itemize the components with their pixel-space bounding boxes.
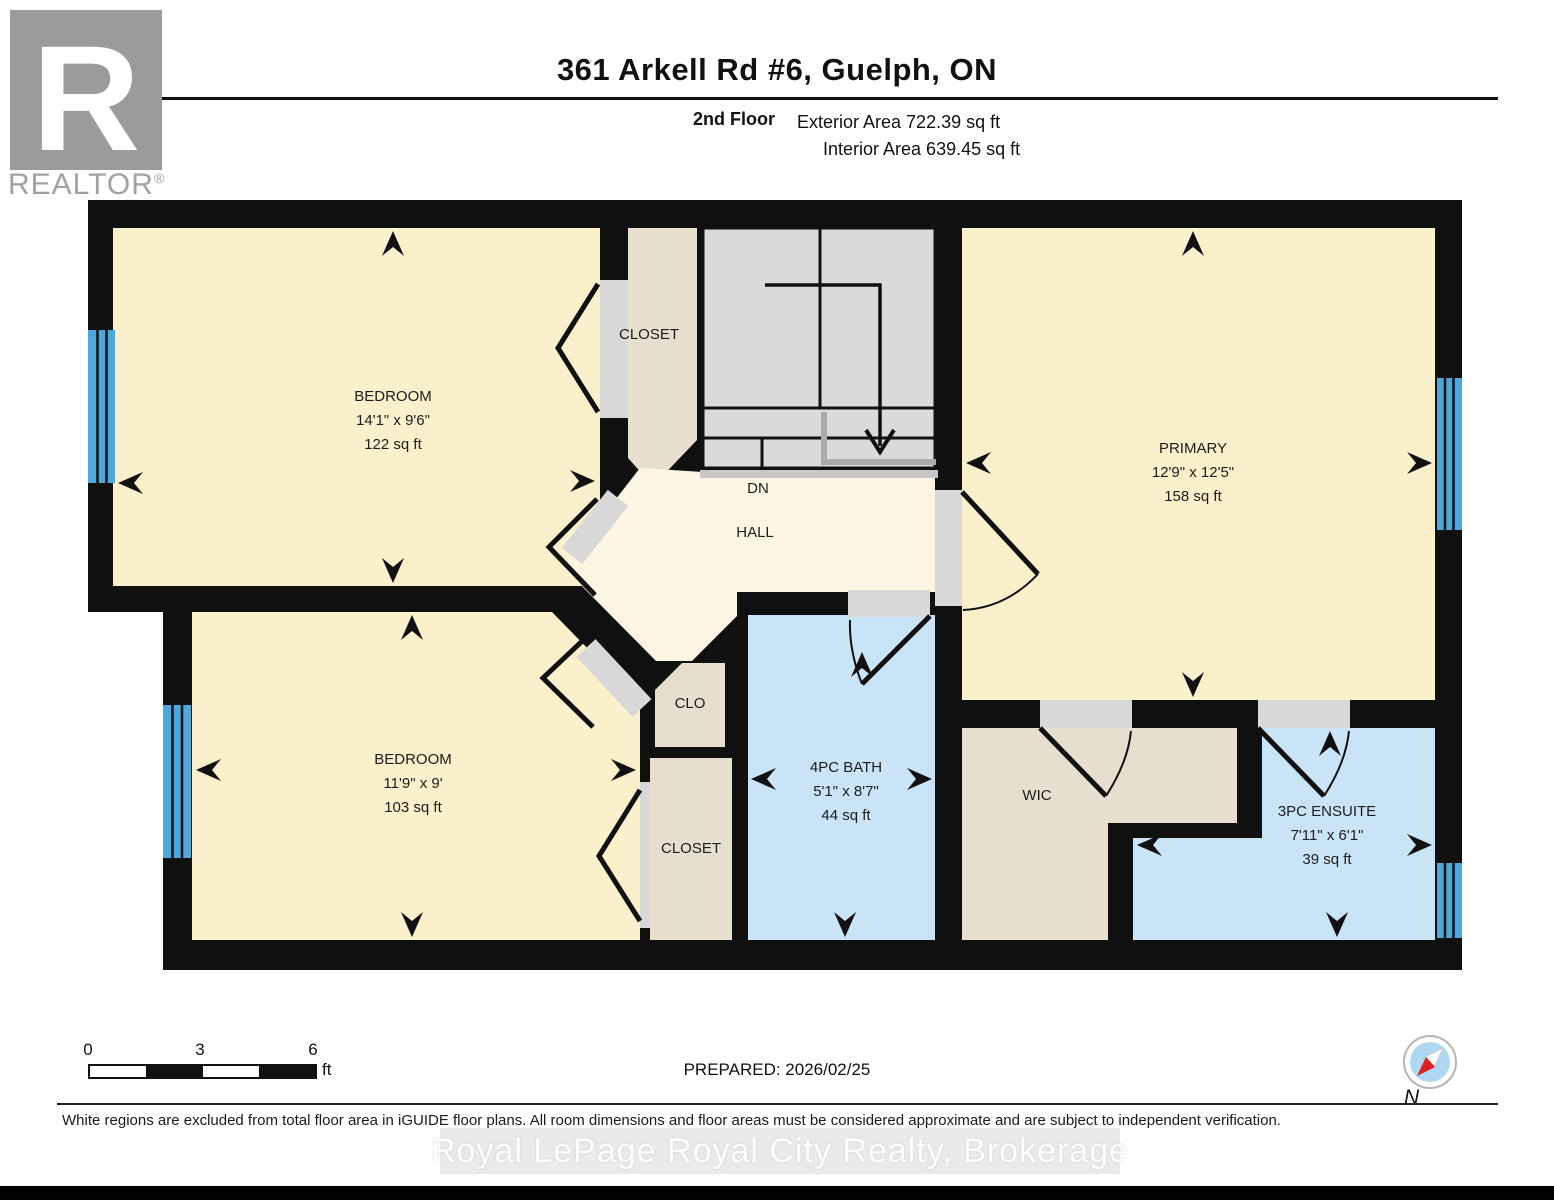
window-primary-icon — [1437, 378, 1462, 530]
floor-plan-page: 361 Arkell Rd #6, Guelph, ON 2nd Floor E… — [0, 0, 1554, 1200]
footer-divider — [57, 1103, 1498, 1105]
scale-tick-0: 0 — [78, 1040, 98, 1060]
ensuite-name: 3PC ENSUITE — [1278, 803, 1376, 820]
door-sill-bath — [848, 590, 930, 617]
door-sill-primary — [935, 490, 962, 606]
bedroom1-area: 122 sq ft — [364, 436, 422, 453]
bath-name: 4PC BATH — [810, 759, 882, 776]
bottom-bar — [0, 1186, 1554, 1200]
ensuite-dims: 7'11" x 6'1" — [1291, 827, 1364, 844]
bedroom2-area: 103 sq ft — [384, 799, 442, 816]
primary-dims: 12'9" x 12'5" — [1152, 464, 1234, 481]
bedroom2-name: BEDROOM — [374, 751, 452, 768]
door-sill-closet-top — [600, 280, 628, 418]
bedroom2-dims: 11'9" x 9' — [383, 775, 442, 792]
bedroom1-dims: 14'1" x 9'6" — [356, 412, 430, 429]
room-bath — [748, 615, 935, 940]
window-ensuite-icon — [1437, 863, 1462, 938]
window-bedroom1-icon — [88, 330, 115, 483]
bedroom1-name: BEDROOM — [354, 388, 432, 405]
primary-name: PRIMARY — [1159, 440, 1227, 457]
room-bedroom-1 — [113, 228, 600, 586]
stair-landing-edge — [700, 470, 938, 478]
scale-tick-6: 6 — [303, 1040, 323, 1060]
clo-name: CLO — [675, 695, 706, 712]
door-sill-ensuite — [1258, 700, 1350, 728]
ensuite-area: 39 sq ft — [1302, 851, 1352, 868]
closet-bottom-name: CLOSET — [661, 840, 721, 857]
stairs-dn-label: DN — [747, 480, 769, 497]
wic-name: WIC — [1022, 787, 1051, 804]
bath-area: 44 sq ft — [821, 807, 871, 824]
disclaimer-text: White regions are excluded from total fl… — [62, 1112, 1362, 1129]
room-closet-top — [628, 228, 697, 486]
compass-icon: N — [1396, 1030, 1466, 1108]
hall-name: HALL — [736, 524, 774, 541]
door-sill-closet-bottom — [640, 782, 650, 928]
scale-tick-3: 3 — [190, 1040, 210, 1060]
floor-plan-svg: BEDROOM 14'1" x 9'6" 122 sq ft CLOSET PR… — [0, 0, 1554, 1200]
closet-top-name: CLOSET — [619, 326, 679, 343]
door-sill-wic — [1040, 700, 1132, 728]
brokerage-watermark: Royal LePage Royal City Realty, Brokerag… — [440, 1128, 1120, 1174]
bath-dims: 5'1" x 8'7" — [813, 783, 879, 800]
window-bedroom2-icon — [163, 705, 191, 858]
primary-area: 158 sq ft — [1164, 488, 1222, 505]
prepared-date: PREPARED: 2026/02/25 — [0, 1060, 1554, 1080]
